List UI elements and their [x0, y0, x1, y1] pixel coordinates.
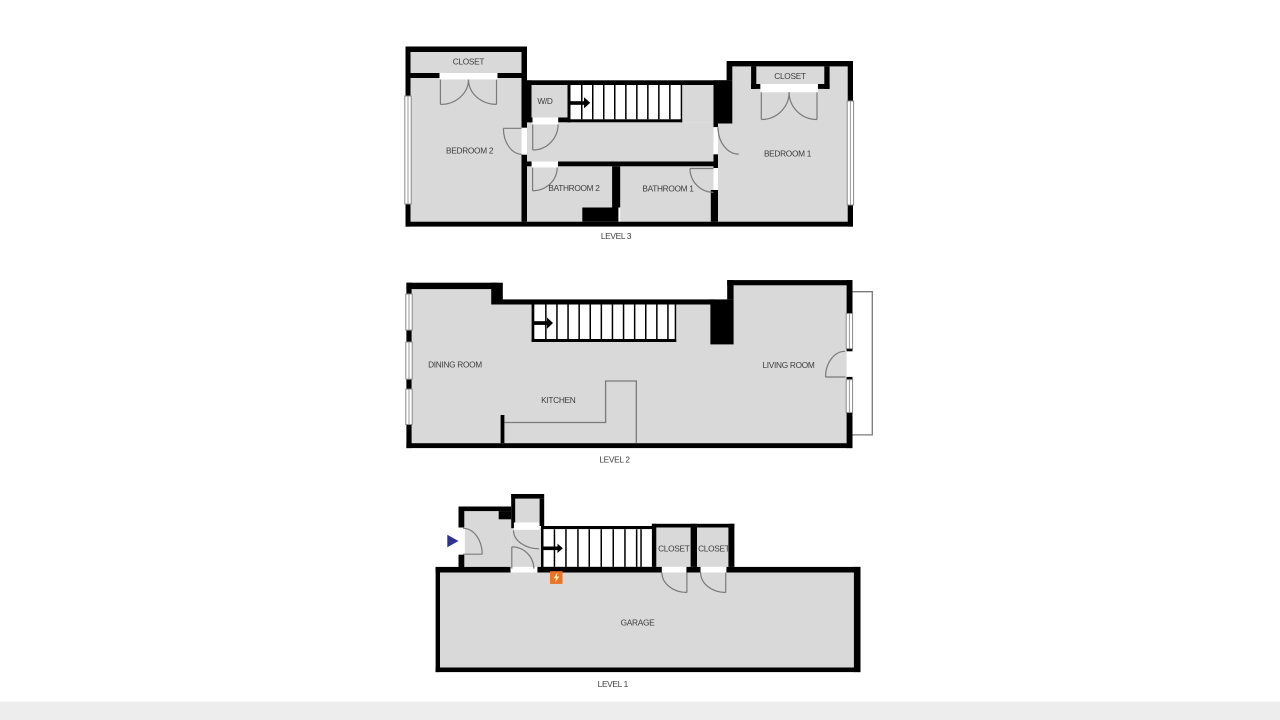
- svg-text:GARAGE: GARAGE: [621, 618, 655, 628]
- svg-text:LEVEL 2: LEVEL 2: [599, 455, 630, 465]
- svg-text:BATHROOM 1: BATHROOM 1: [642, 184, 694, 194]
- svg-text:BEDROOM 2: BEDROOM 2: [446, 146, 494, 156]
- svg-text:CLOSET: CLOSET: [698, 543, 730, 553]
- svg-text:LIVING ROOM: LIVING ROOM: [762, 360, 814, 370]
- svg-text:BEDROOM 1: BEDROOM 1: [764, 149, 812, 159]
- svg-text:KITCHEN: KITCHEN: [541, 395, 576, 405]
- svg-text:CLOSET: CLOSET: [658, 543, 690, 553]
- svg-text:W/D: W/D: [537, 96, 553, 106]
- svg-text:LEVEL 1: LEVEL 1: [598, 679, 629, 689]
- svg-text:BATHROOM 2: BATHROOM 2: [548, 183, 600, 193]
- svg-text:DINING ROOM: DINING ROOM: [428, 360, 482, 370]
- svg-text:LEVEL 3: LEVEL 3: [601, 231, 632, 241]
- svg-text:CLOSET: CLOSET: [453, 57, 485, 67]
- svg-text:CLOSET: CLOSET: [774, 71, 806, 81]
